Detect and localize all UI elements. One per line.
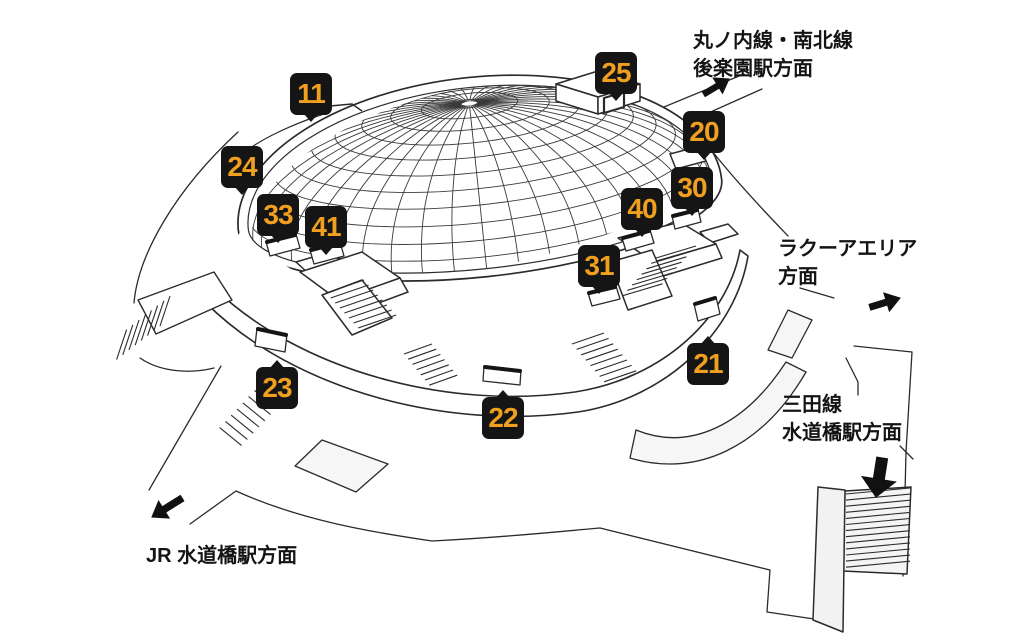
laqua-ramp-segment <box>768 310 812 358</box>
gate-badge-33: 33 <box>257 194 299 236</box>
gate-number: 11 <box>297 78 325 110</box>
gate-badge-31: 31 <box>578 245 620 287</box>
label-line: JR 水道橋駅方面 <box>146 543 297 571</box>
arrow-to-laqua <box>869 293 900 311</box>
gate-number: 24 <box>227 151 256 183</box>
gate-number: 21 <box>693 348 722 380</box>
label-line: 水道橋駅方面 <box>782 420 902 448</box>
label-line: ラクーアエリア <box>778 236 917 264</box>
southeast-walkway-band <box>813 487 845 632</box>
gate-badge-30: 30 <box>671 167 713 209</box>
gate-badge-22: 22 <box>482 397 524 439</box>
gate-number: 41 <box>311 211 340 243</box>
gate-number: 20 <box>689 116 718 148</box>
gate-number: 33 <box>263 199 292 231</box>
gate-number: 23 <box>262 372 291 404</box>
label-line: 丸ノ内線・南北線 <box>693 28 853 56</box>
gate-badge-11: 11 <box>290 73 332 115</box>
gate-badge-20: 20 <box>683 111 725 153</box>
gate-badge-24: 24 <box>221 146 263 188</box>
plaza-pad <box>295 440 388 492</box>
gate-number: 40 <box>627 193 656 225</box>
gate-badge-21: 21 <box>687 343 729 385</box>
gate-number: 22 <box>488 402 517 434</box>
gate-badge-40: 40 <box>621 188 663 230</box>
ground-left-small-curve <box>140 358 214 371</box>
label-korakuen-direction: 丸ノ内線・南北線 後楽園駅方面 <box>693 28 853 83</box>
label-line: 方面 <box>778 264 917 292</box>
label-line: 後楽園駅方面 <box>693 56 853 84</box>
arrow-to-jr-suidobashi <box>152 498 183 518</box>
label-mita-direction: 三田線 水道橋駅方面 <box>782 392 902 447</box>
dome-guide-map: 11 25 20 24 30 33 40 41 31 21 23 22 丸ノ内線… <box>0 0 1024 642</box>
label-jr-direction: JR 水道橋駅方面 <box>146 543 297 571</box>
label-laqua-direction: ラクーアエリア 方面 <box>778 236 917 291</box>
gate-badge-41: 41 <box>305 206 347 248</box>
jr-path-left-edge <box>149 366 221 490</box>
gate-number: 30 <box>677 172 706 204</box>
label-line: 三田線 <box>782 392 902 420</box>
gate-badge-23: 23 <box>256 367 298 409</box>
gate-number: 31 <box>584 250 613 282</box>
mita-leader-upper <box>846 358 858 395</box>
gate-badge-25: 25 <box>595 52 637 94</box>
left-platform <box>138 272 232 334</box>
gate-number: 25 <box>601 57 630 89</box>
